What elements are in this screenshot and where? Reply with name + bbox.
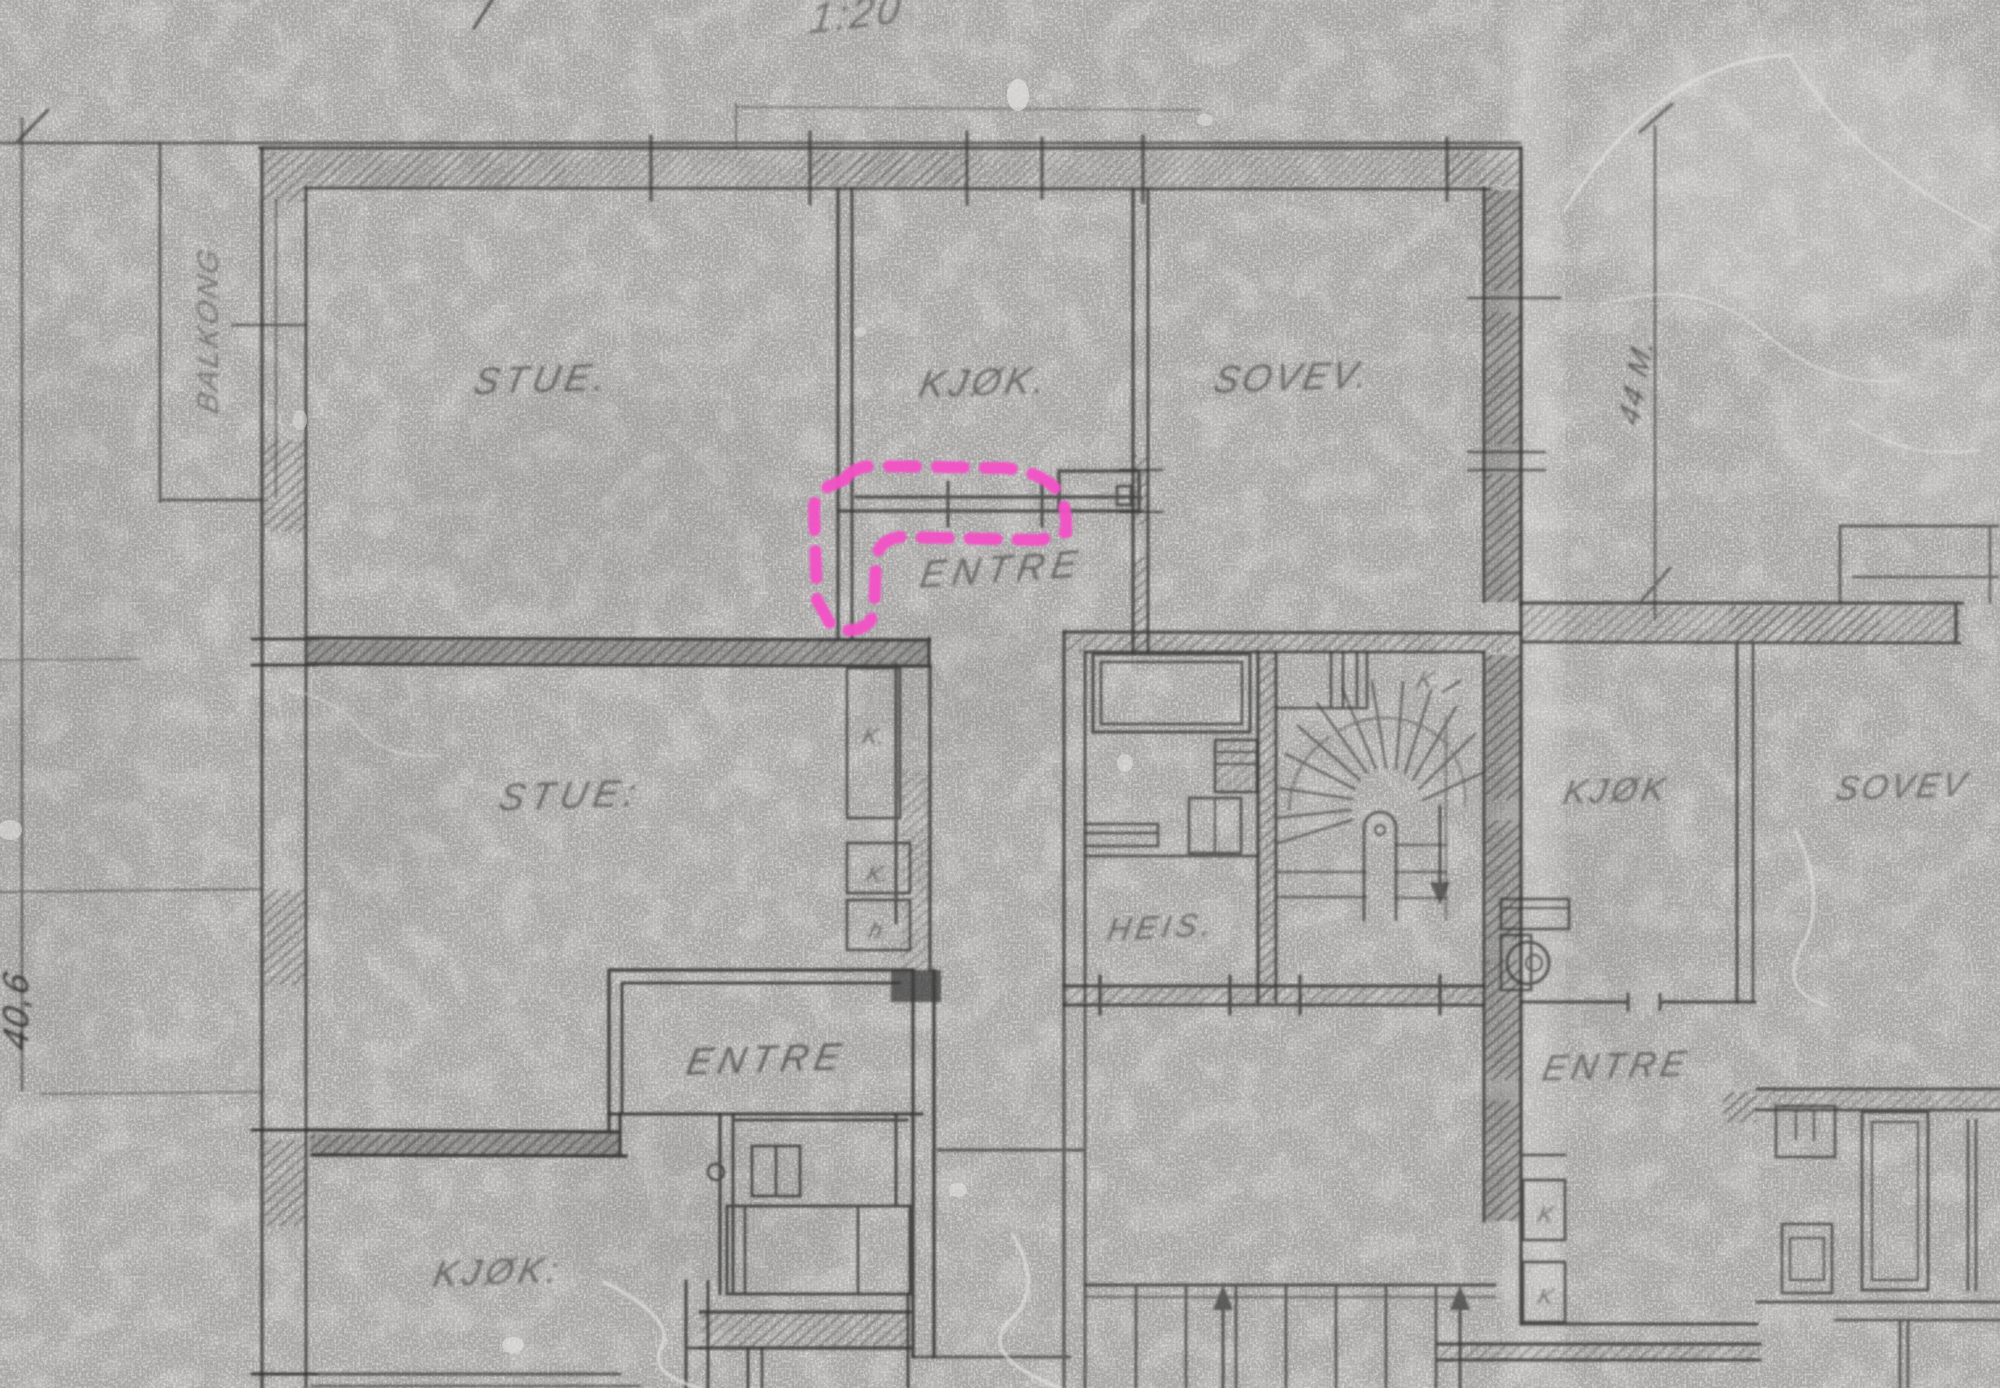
svg-text:SOVEV: SOVEV <box>1832 766 1971 808</box>
svg-text:STUE.: STUE. <box>470 356 615 404</box>
svg-text:HEIS.: HEIS. <box>1105 906 1220 948</box>
svg-text:SOVEV.: SOVEV. <box>1210 353 1375 401</box>
svg-text:ENTRE: ENTRE <box>683 1035 850 1083</box>
svg-text:ENTRE: ENTRE <box>1539 1043 1694 1089</box>
svg-text:KJØK: KJØK <box>1560 770 1672 811</box>
svg-text:KJØK.: KJØK. <box>915 359 1053 406</box>
svg-text:KJØK:: KJØK: <box>430 1249 567 1294</box>
svg-text:STUE:: STUE: <box>495 772 645 820</box>
svg-text:40,6: 40,6 <box>0 966 36 1053</box>
svg-text:BALKONG: BALKONG <box>191 243 225 417</box>
